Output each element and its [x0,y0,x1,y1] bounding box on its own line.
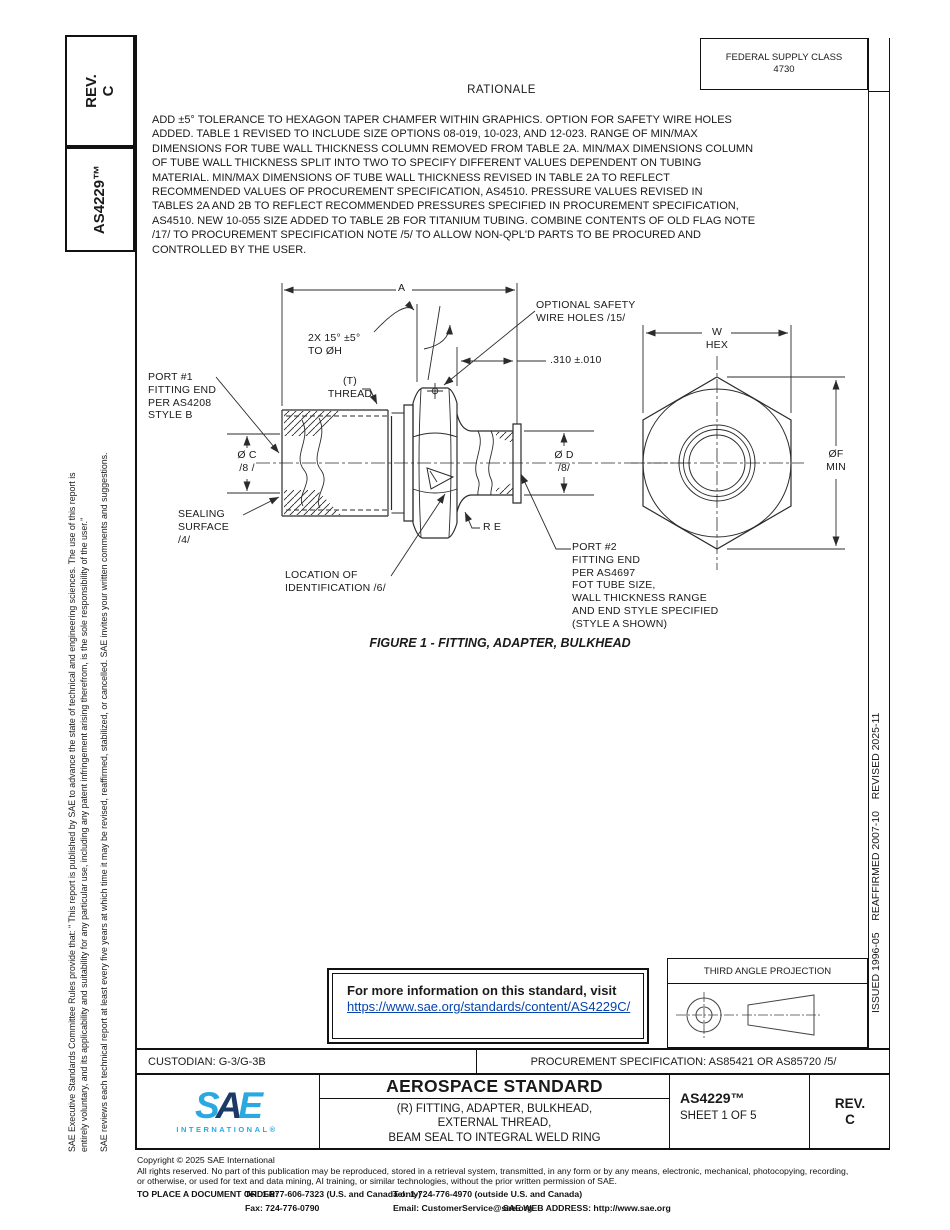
radius-e-label: R E [483,521,501,534]
order-fax: Fax: 724-776-0790 [245,1203,319,1213]
custodian-bar: CUSTODIAN: G-3/G-3B PROCUREMENT SPECIFIC… [135,1048,890,1075]
title-block-center: AEROSPACE STANDARD (R) FITTING, ADAPTER,… [320,1075,670,1148]
document-page: REV. C AS4229™ SAE Executive Standards C… [0,0,950,1230]
chamfer-callout: 2X 15° ±5° TO ØH [308,332,360,358]
sae-logo-subtext: INTERNATIONAL® [176,1125,277,1134]
thread-callout: (T) THREAD [325,375,375,401]
revision-cell: REV. C [810,1075,890,1148]
dia-f-label: ØF MIN [819,448,853,474]
order-tel-international: Tel: 1-724-776-4970 (outside U.S. and Ca… [393,1189,582,1199]
document-kind: AEROSPACE STANDARD [320,1075,669,1099]
third-angle-projection-label: THIRD ANGLE PROJECTION [668,959,867,984]
third-angle-projection-symbol [668,984,866,1045]
more-info-box: For more information on this standard, v… [327,968,649,1044]
rationale-body: ADD ±5° TOLERANCE TO HEXAGON TAPER CHAMF… [152,113,842,257]
third-angle-projection-box: THIRD ANGLE PROJECTION [667,958,868,1048]
rights-statement: All rights reserved. No part of this pub… [137,1166,937,1187]
more-info-text: For more information on this standard, v… [347,983,631,998]
sheet-number: SHEET 1 OF 5 [680,1110,809,1122]
disclaimer-paragraph-1: SAE Executive Standards Committee Rules … [66,254,91,1152]
safety-wire-callout: OPTIONAL SAFETY WIRE HOLES /15/ [536,299,635,325]
sae-logo-letter-e: E [238,1085,259,1126]
disclaimer-paragraph-2: SAE reviews each technical report at lea… [98,254,110,1152]
dia-c-label: Ø C /8 / [230,449,264,475]
offset-dim-label: .310 ±.010 [550,354,602,367]
figure-caption: FIGURE 1 - FITTING, ADAPTER, BULKHEAD [245,636,755,650]
document-number: AS4229™ [680,1090,809,1106]
sae-logo: SAE INTERNATIONAL® [135,1075,320,1148]
rationale-heading: RATIONALE [135,84,868,96]
sae-disclaimer: SAE Executive Standards Committee Rules … [66,254,110,1152]
location-id-callout: LOCATION OF IDENTIFICATION /6/ [285,569,386,595]
doc-number-vertical: AS4229™ [92,165,109,234]
frame-left-border [135,35,137,1150]
doc-number-box: AS4229™ [65,147,135,252]
port1-callout: PORT #1 FITTING END PER AS4208 STYLE B [148,371,216,422]
custodian-label: CUSTODIAN: G-3/G-3B [135,1050,477,1073]
rev-box: REV. C [65,35,135,147]
title-block-number-cell: AS4229™ SHEET 1 OF 5 [670,1075,810,1148]
dia-d-label: Ø D /8/ [547,449,581,475]
procurement-spec-label: PROCUREMENT SPECIFICATION: AS85421 OR AS… [477,1050,890,1073]
sae-web-address: SAE WEB ADDRESS: http://www.sae.org [503,1203,671,1213]
federal-supply-class-box: FEDERAL SUPPLY CLASS 4730 [700,38,868,90]
standard-url-link[interactable]: https://www.sae.org/standards/content/AS… [347,999,630,1014]
sealing-surface-callout: SEALING SURFACE /4/ [178,508,229,546]
right-rail-tick [868,91,889,92]
copyright-line: Copyright © 2025 SAE International [137,1155,275,1165]
rev-label: REV. C [83,74,117,108]
sae-logo-letter-a: A [216,1085,239,1126]
w-hex-label: W HEX [699,326,735,352]
port2-callout: PORT #2 FITTING END PER AS4697 FOT TUBE … [572,541,718,631]
dim-a-label: A [398,282,405,295]
title-block: SAE INTERNATIONAL® AEROSPACE STANDARD (R… [135,1075,890,1150]
document-title: (R) FITTING, ADAPTER, BULKHEAD, EXTERNAL… [320,1099,669,1148]
sae-logo-letter-s: S [195,1085,216,1126]
revision-history: ISSUED 1996-05 REAFFIRMED 2007-10 REVISE… [870,631,882,1013]
